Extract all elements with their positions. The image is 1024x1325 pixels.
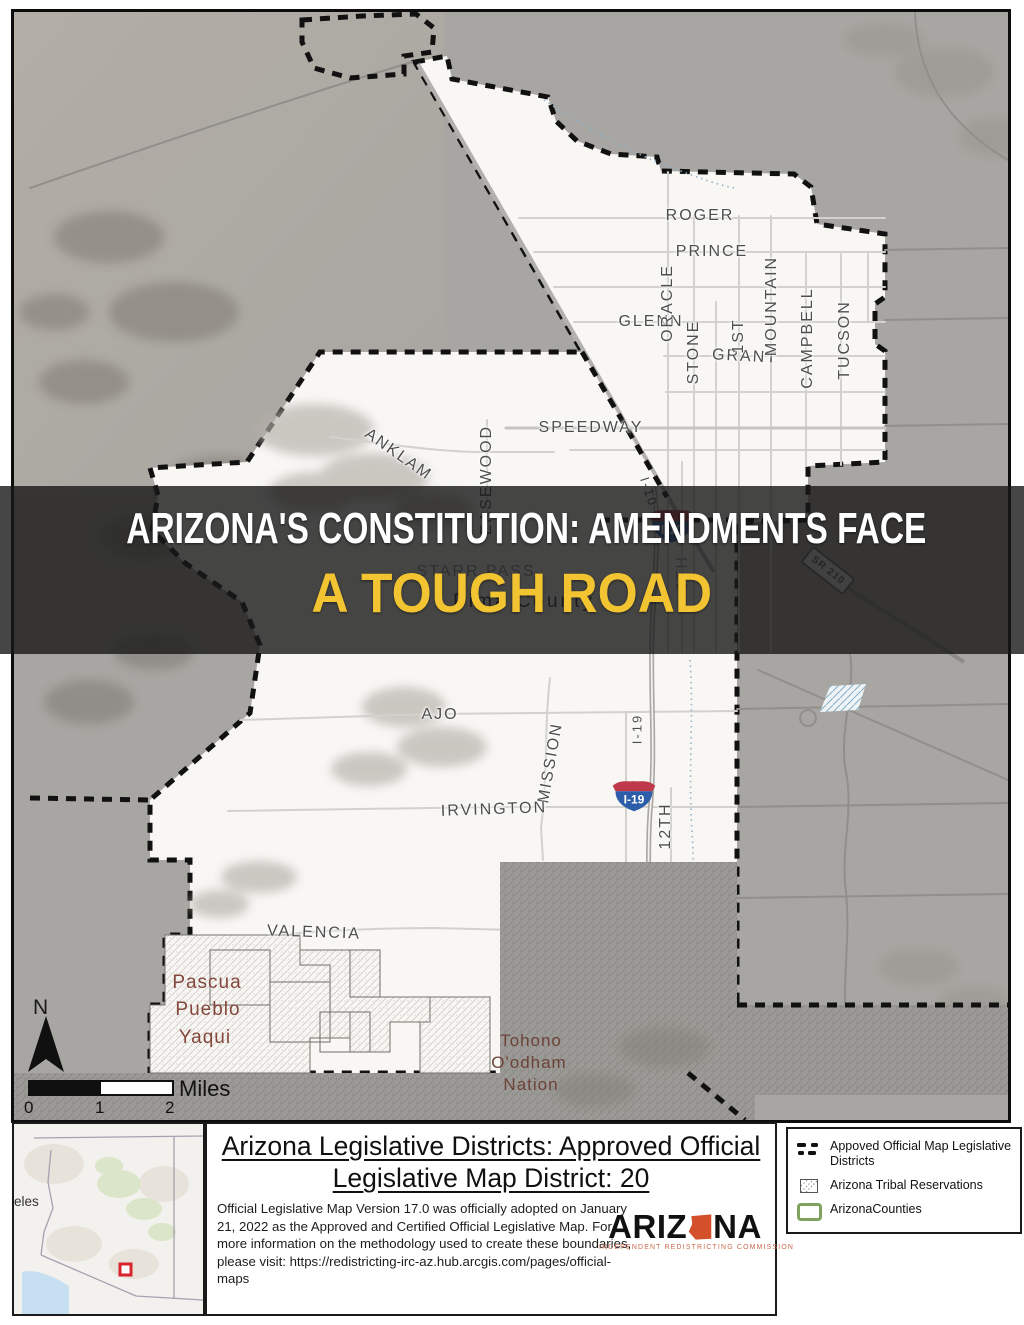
map-document: ROGER PRINCE GLENN GRANT SPEEDWAY ORACLE… [0,0,1024,1325]
reservation-label-pascua-1: Pascua [172,972,241,994]
north-arrow-icon [27,1016,65,1074]
reservation-label-tohono-3: Nation [503,1075,558,1095]
irc-logo: ARIZNA INDEPENDENT REDISTRICTING COMMISS… [599,1210,771,1251]
street-label-oracle: ORACLE [659,264,677,342]
street-label-stone: STONE [685,320,703,385]
svg-text:I-19: I-19 [624,792,645,806]
scale-tick-0: 0 [24,1098,33,1118]
street-label-roger: ROGER [666,207,735,225]
map-title-line-1: Arizona Legislative Districts: Approved … [222,1131,761,1161]
reservation-label-pascua-2: Pueblo [175,999,240,1021]
street-label-speedway: SPEEDWAY [539,419,644,437]
street-label-1st: 1ST [730,318,748,353]
reservation-label-tohono-1: Tohono [500,1031,562,1051]
legend-item-tribal: Arizona Tribal Reservations [796,1178,1014,1193]
headline-banner: ARIZONA'S CONSTITUTION: AMENDMENTS FACE … [0,486,1024,654]
scale-tick-2: 2 [165,1098,174,1118]
map-title-line-2: Legislative Map District: 20 [333,1163,650,1193]
arizona-state-inset [14,1124,203,1314]
reservation-label-pascua-3: Yaqui [179,1027,231,1049]
headline-line-2: A TOUGH ROAD [0,560,1024,625]
county-outline-icon [796,1202,822,1221]
legend-label-counties: ArizonaCounties [830,1202,1014,1217]
i19-shield-icon: I-19 [609,776,659,814]
map-title-block: Arizona Legislative Districts: Approved … [205,1122,777,1316]
hatched-area-icon [796,1178,822,1193]
street-label-valencia: VALENCIA [267,922,362,943]
inset-locator-map: eles [12,1122,205,1316]
street-label-tucson: TUCSON [836,300,854,380]
irc-logo-subtitle: INDEPENDENT REDISTRICTING COMMISSION [599,1244,771,1251]
street-label-ajo: AJO [421,706,458,724]
headline-line-1: ARIZONA'S CONSTITUTION: AMENDMENTS FACE [0,504,1024,554]
arizona-state-icon [687,1213,713,1241]
legend-label-districts: Appoved Official Map Legislative Distric… [830,1139,1014,1169]
street-label-campbell: CAMPBELL [799,287,817,388]
scale-bar [28,1080,174,1096]
scale-tick-1: 1 [95,1098,104,1118]
map-legend: Appoved Official Map Legislative Distric… [786,1127,1022,1234]
street-label-prince: PRINCE [676,243,748,261]
district-location-marker [120,1264,131,1275]
reservation-label-tohono-2: O'odham [491,1053,566,1073]
route-label-i19: I-19 [630,714,645,744]
map-credits-text: Official Legislative Map Version 17.0 wa… [217,1200,637,1288]
street-label-mountain: MOUNTAIN [763,256,781,356]
street-label-12th: 12TH [657,802,675,849]
street-label-irvington: IRVINGTON [441,799,548,821]
scale-unit-label: Miles [179,1076,230,1102]
inset-partial-place-label: eles [14,1194,39,1209]
legend-item-counties: ArizonaCounties [796,1202,1014,1221]
legend-item-districts: Appoved Official Map Legislative Distric… [796,1139,1014,1169]
legend-label-tribal: Arizona Tribal Reservations [830,1178,1014,1193]
irc-logo-wordmark: ARIZNA [599,1210,771,1243]
map-title: Arizona Legislative Districts: Approved … [215,1130,767,1195]
dashed-boundary-icon [796,1139,822,1157]
